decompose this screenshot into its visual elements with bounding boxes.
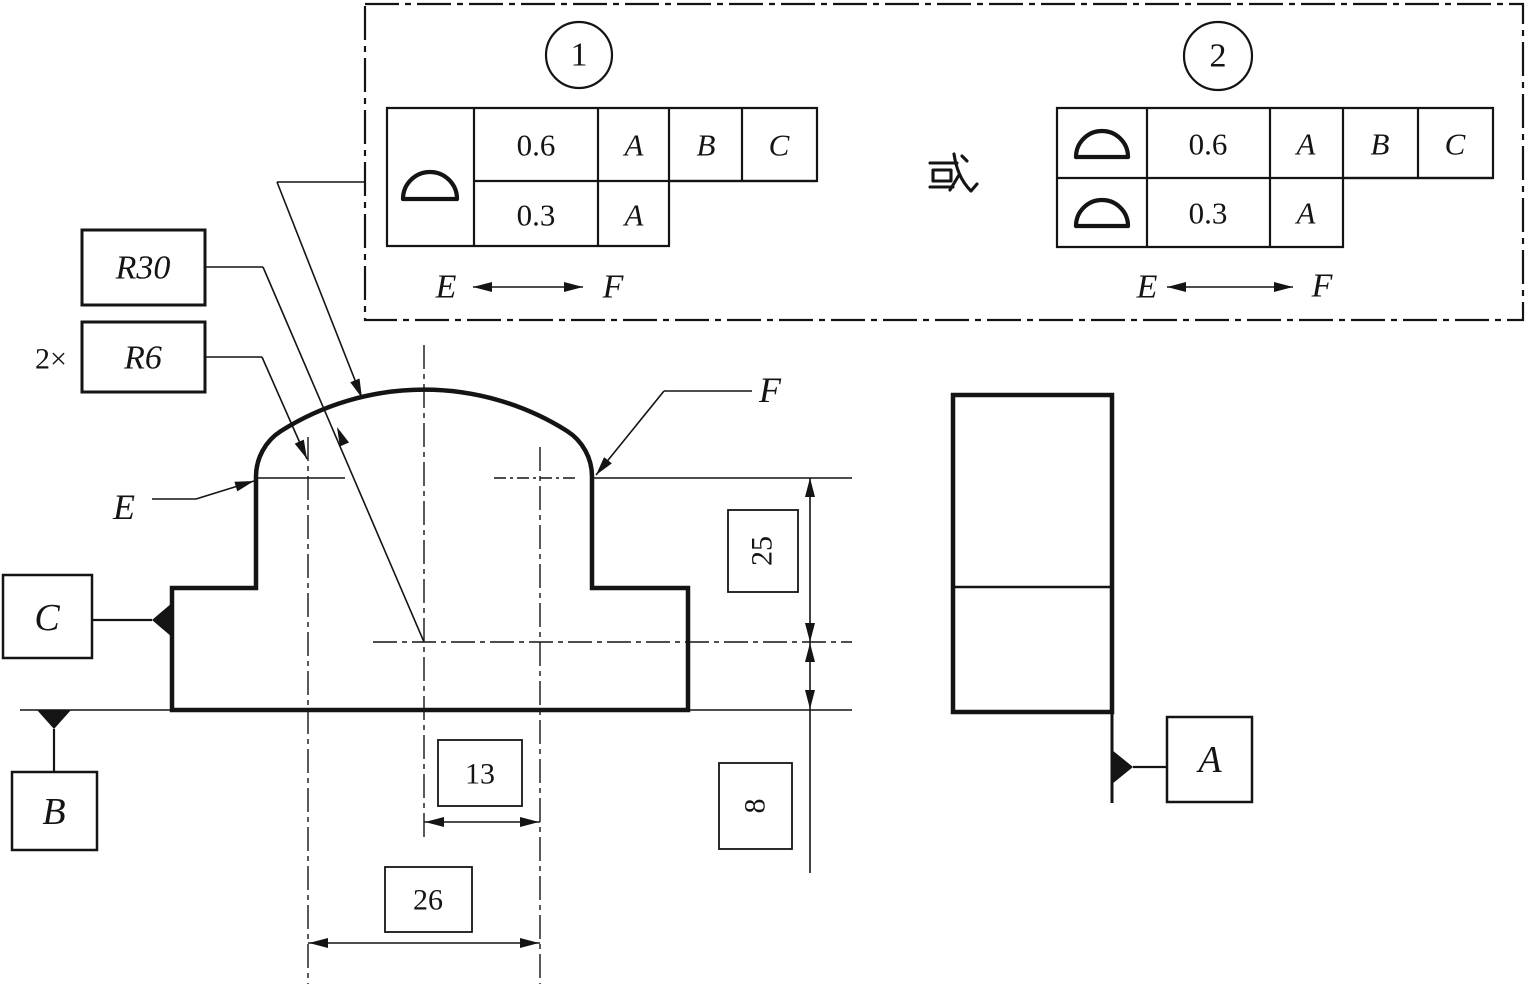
extent-to-label: F xyxy=(1311,268,1334,305)
datum-b-label: B xyxy=(42,791,65,833)
point-e-callout: E xyxy=(112,476,255,527)
callout-1-feature-control-frame: 0.6 A B C 0.3 A xyxy=(387,108,817,246)
datum-a: A xyxy=(1112,717,1252,802)
datum-b-triangle xyxy=(37,710,71,729)
profile-of-surface-icon xyxy=(1076,131,1128,157)
extent-to-label: F xyxy=(602,269,625,306)
fcf2-datum-c: C xyxy=(1445,127,1466,162)
dim-8-value: 8 xyxy=(739,799,772,814)
r6-count-prefix: 2× xyxy=(35,343,67,376)
callout-2-feature-control-frame: 0.6 A B C 0.3 A xyxy=(1057,108,1493,247)
fcf1-datum-a: A xyxy=(623,128,645,163)
dim-26-value: 26 xyxy=(413,884,443,917)
datum-a-label: A xyxy=(1195,739,1222,781)
side-view-outline xyxy=(953,395,1112,712)
fcf2-datum-a2: A xyxy=(1295,196,1317,231)
point-e-label: E xyxy=(112,487,135,527)
fcf1-tolerance-2: 0.3 xyxy=(517,198,556,233)
datum-a-triangle xyxy=(1112,750,1133,784)
vertical-dimensions: 25 8 xyxy=(719,478,815,873)
point-f-callout: F xyxy=(592,370,782,478)
callout-1: 1 0.6 A B C 0.3 A E xyxy=(387,22,817,306)
side-view: A xyxy=(953,395,1252,803)
dim-13-value: 13 xyxy=(465,758,495,791)
fcf2-datum-a: A xyxy=(1295,127,1317,162)
datum-c-label: C xyxy=(34,597,60,639)
engineering-drawing-page: 1 0.6 A B C 0.3 A E xyxy=(0,0,1533,985)
datum-c: C xyxy=(3,575,172,658)
callout-2: 2 0.6 A B C 0.3 xyxy=(1057,22,1493,306)
radius-r30-callout: R30 xyxy=(82,230,424,642)
alternatives-panel: 1 0.6 A B C 0.3 A E xyxy=(365,4,1523,320)
extent-from-label: E xyxy=(1136,269,1158,306)
fcf1-datum-b: B xyxy=(697,128,716,163)
horizontal-dimensions: 13 26 xyxy=(308,740,540,948)
point-f-label: F xyxy=(758,370,782,410)
extent-from-label: E xyxy=(435,269,457,306)
callout-2-extent: E F xyxy=(1136,268,1334,306)
callout-1-extent: E F xyxy=(435,269,625,306)
part-profile xyxy=(172,390,688,710)
fcf2-tolerance-1: 0.6 xyxy=(1189,127,1228,162)
fcf1-datum-c: C xyxy=(769,128,790,163)
datum-b: B xyxy=(12,710,97,850)
r30-label: R30 xyxy=(115,250,171,287)
callout-1-number: 1 xyxy=(571,37,588,74)
front-view: R30 2× R6 E F xyxy=(3,182,852,984)
dim-25-value: 25 xyxy=(746,536,779,566)
panel-leader xyxy=(277,182,367,400)
or-character-huo xyxy=(930,154,977,191)
fcf1-tolerance-1: 0.6 xyxy=(517,128,556,163)
profile-of-surface-icon xyxy=(1076,200,1128,226)
drawing-canvas: 1 0.6 A B C 0.3 A E xyxy=(0,0,1533,985)
fcf1-outline xyxy=(387,108,817,246)
fcf2-datum-b: B xyxy=(1371,127,1390,162)
fcf1-datum-a2: A xyxy=(623,198,645,233)
profile-of-surface-icon xyxy=(403,172,457,199)
fcf2-tolerance-2: 0.3 xyxy=(1189,196,1228,231)
datum-c-triangle xyxy=(152,603,172,637)
r6-label: R6 xyxy=(123,340,162,377)
callout-2-number: 2 xyxy=(1210,38,1227,75)
r30-radius-line xyxy=(263,267,424,642)
